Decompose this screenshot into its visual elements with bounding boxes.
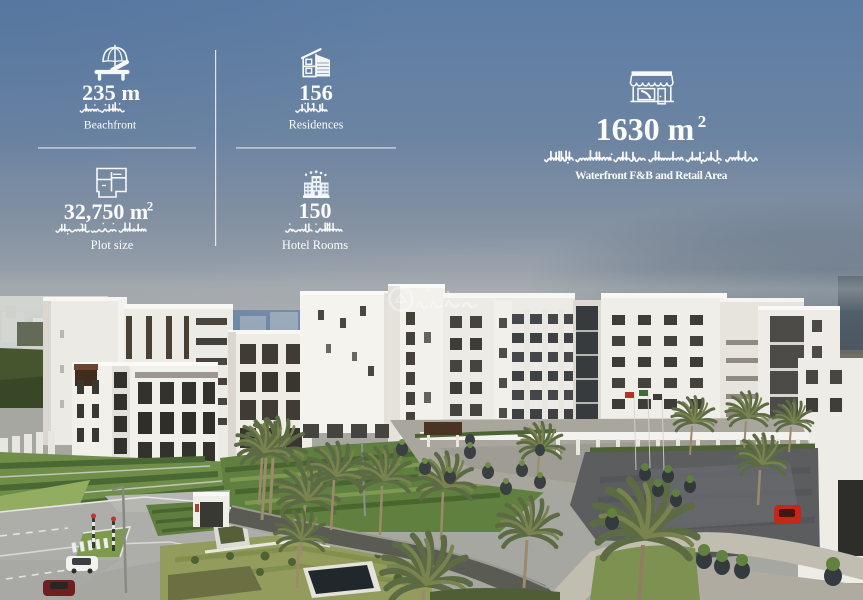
svg-text:1630 m: 1630 m <box>596 111 695 147</box>
svg-text:235 m: 235 m <box>82 80 140 105</box>
svg-text:Beachfront: Beachfront <box>84 118 137 132</box>
svg-text:32,750 m: 32,750 m <box>64 199 148 224</box>
svg-text:Plot size: Plot size <box>91 238 134 252</box>
svg-text:Residences: Residences <box>289 118 344 132</box>
svg-text:156: 156 <box>299 80 333 105</box>
svg-text:Waterfront F&B and Retail Area: Waterfront F&B and Retail Area <box>575 170 728 182</box>
svg-text:2: 2 <box>698 112 707 131</box>
svg-text:2: 2 <box>147 199 154 214</box>
svg-text:150: 150 <box>299 198 332 223</box>
svg-text:Hotel Rooms: Hotel Rooms <box>282 238 348 252</box>
